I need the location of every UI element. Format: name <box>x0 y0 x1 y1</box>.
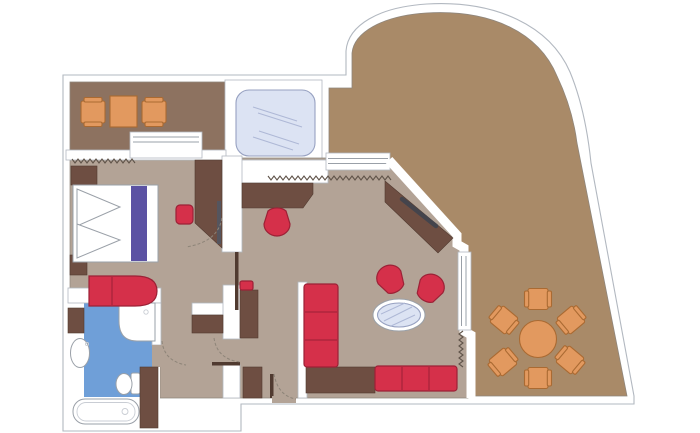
front-balcony <box>81 96 166 127</box>
shower <box>119 303 155 341</box>
balcony-table <box>110 96 137 127</box>
balcony-armchair <box>81 98 105 127</box>
desk <box>242 183 313 208</box>
nightstand-top <box>71 166 97 185</box>
bathroom <box>68 288 162 429</box>
sliding-door-panel <box>235 252 239 310</box>
suite-floor-plan <box>0 0 700 433</box>
closet-c <box>243 367 262 398</box>
closet-b <box>240 290 258 338</box>
closet-a <box>192 315 223 333</box>
bedroom-balcony-window <box>130 132 202 158</box>
whirlpool-bath <box>236 90 315 156</box>
round-dining-table <box>520 321 557 358</box>
desk-chair <box>264 208 290 236</box>
entry-door-jamb <box>270 374 274 398</box>
sofa-vertical <box>304 284 338 367</box>
dressing-wall-a <box>192 303 224 315</box>
dining-chair <box>525 289 552 310</box>
living-top-window <box>326 153 390 170</box>
love-seat <box>89 276 157 306</box>
entry-door-opening <box>272 396 296 403</box>
bathroom-side-wall <box>140 367 158 428</box>
dressing-stool <box>240 281 253 290</box>
dressing-wall-c <box>223 365 240 398</box>
floor-plan-page <box>0 0 700 433</box>
ottoman <box>176 205 193 224</box>
hall-partition-line <box>212 362 240 366</box>
vanity-cabinet <box>68 308 84 333</box>
toilet-bowl <box>116 374 132 395</box>
wardrobe-mirror <box>217 201 221 244</box>
sofa-horizontal <box>375 366 457 391</box>
balcony-armchair <box>142 98 166 127</box>
corner-table <box>306 367 375 393</box>
living-east-window <box>458 252 471 330</box>
bedroom-east-wall <box>222 156 242 252</box>
bed-runner <box>131 186 147 261</box>
dining-chair <box>525 368 552 389</box>
bathroom-door-opening <box>152 345 162 367</box>
whirlpool-tub <box>236 90 315 156</box>
